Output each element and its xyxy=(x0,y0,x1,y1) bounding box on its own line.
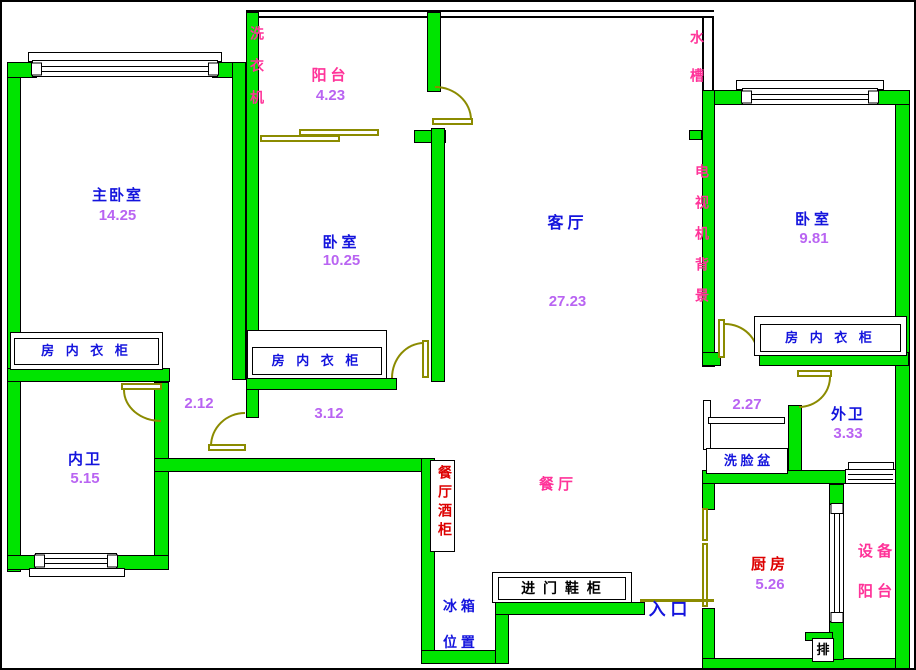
label-fridge-line2: 位 置 xyxy=(436,632,482,652)
area-master-bedroom: 14.25 xyxy=(60,207,175,224)
wall-shoe-cabinet xyxy=(495,602,645,615)
area-outer-bathroom: 3.33 xyxy=(817,425,879,442)
exhaust-label: 排 xyxy=(812,638,834,661)
door-rbed-leaf xyxy=(718,319,725,358)
label-dining-room: 餐厅 xyxy=(529,473,587,494)
label-washing-machine: 洗衣机 xyxy=(247,26,267,118)
washbasin-counter-horizontal xyxy=(708,417,785,424)
window-sill-innerbath xyxy=(29,568,125,577)
window-master xyxy=(32,60,218,77)
door-hall-dining-arc xyxy=(210,412,245,446)
label-kitchen: 厨房 xyxy=(739,553,801,574)
window-equip xyxy=(845,469,896,484)
measure-middle-corridor: 3.12 xyxy=(304,405,354,422)
label-bedroom-middle: 卧室 xyxy=(304,231,379,252)
door-innerbath-arc xyxy=(123,390,161,422)
wall-outer-left xyxy=(7,62,21,572)
washbasin-label: 洗 脸 盆 xyxy=(706,448,788,473)
wall-balcony-right xyxy=(427,12,441,92)
area-bedroom-right: 9.81 xyxy=(774,230,854,247)
sliding-door-balcony-panel2 xyxy=(299,129,379,136)
measure-left-hall: 2.12 xyxy=(174,395,224,412)
sink-duct-line-right xyxy=(712,18,714,90)
label-fridge-line1: 冰 箱 xyxy=(436,596,482,616)
wall-midbed-right xyxy=(431,128,445,382)
area-kitchen: 5.26 xyxy=(739,576,801,593)
wall-master-bottom xyxy=(7,368,170,382)
wardrobe-midbed-label: 房 内 衣 柜 xyxy=(252,347,382,374)
label-outer-bathroom: 外卫 xyxy=(817,403,879,424)
wall-midbed-bottom xyxy=(246,378,397,390)
door-midbed-leaf xyxy=(422,340,429,378)
balcony-outer-line-top xyxy=(246,10,714,12)
door-innerbath-leaf xyxy=(121,383,162,390)
area-inner-bathroom: 5.15 xyxy=(54,470,116,487)
wall-outerbath-left xyxy=(788,405,802,471)
wall-sink-stub xyxy=(689,130,702,140)
wine-cabinet-label: 餐厅酒柜 xyxy=(435,465,455,549)
door-balcony-living-leaf xyxy=(432,118,473,125)
label-balcony: 阳台 xyxy=(298,64,363,85)
label-inner-bathroom: 内卫 xyxy=(54,448,116,469)
label-master-bedroom: 主卧室 xyxy=(60,184,175,205)
area-living-room: 27.23 xyxy=(530,293,605,310)
label-tv-background: 电视机背景 xyxy=(692,164,712,319)
door-midbed-arc xyxy=(391,342,424,378)
label-water-sink: 水槽 xyxy=(687,30,707,110)
wall-rbed-top-right xyxy=(875,90,910,105)
sliding-door-kitchen-panel2 xyxy=(702,543,708,607)
measure-right-hall: 2.27 xyxy=(722,396,772,413)
wardrobe-rbed-label: 房 内 衣 柜 xyxy=(760,324,901,351)
door-balcony-living-arc xyxy=(435,86,472,120)
area-bedroom-middle: 10.25 xyxy=(304,252,379,269)
label-equip-balcony-line2: 阳 台 xyxy=(847,580,903,601)
sliding-door-kitchen-panel1 xyxy=(702,508,708,541)
area-balcony: 4.23 xyxy=(298,87,363,104)
label-living-room: 客厅 xyxy=(530,209,605,233)
shoe-cabinet-label: 进 门 鞋 柜 xyxy=(498,577,626,599)
label-equip-balcony-line1: 设 备 xyxy=(847,540,903,561)
wall-hall-dining xyxy=(154,458,435,472)
balcony-outer-line-bottom xyxy=(246,16,714,18)
window-rbed xyxy=(742,88,878,105)
wall-master-right xyxy=(232,62,246,380)
label-bedroom-right: 卧室 xyxy=(774,208,854,229)
sliding-door-balcony-panel1 xyxy=(260,135,340,142)
window-kitchen-equip xyxy=(829,504,844,622)
floor-plan: 房 内 衣 柜 房 内 衣 柜 房 内 衣 柜 餐厅酒柜 进 门 鞋 柜 洗 脸… xyxy=(0,0,916,670)
wardrobe-master-label: 房 内 衣 柜 xyxy=(14,338,159,364)
wall-kitchen-bottom xyxy=(702,658,910,670)
door-outerbath-leaf xyxy=(797,370,832,377)
door-hall-dining-leaf xyxy=(208,444,246,451)
window-innerbath xyxy=(35,553,117,569)
label-entrance: 入 口 xyxy=(642,595,694,620)
washbasin-counter-vertical xyxy=(703,400,711,450)
